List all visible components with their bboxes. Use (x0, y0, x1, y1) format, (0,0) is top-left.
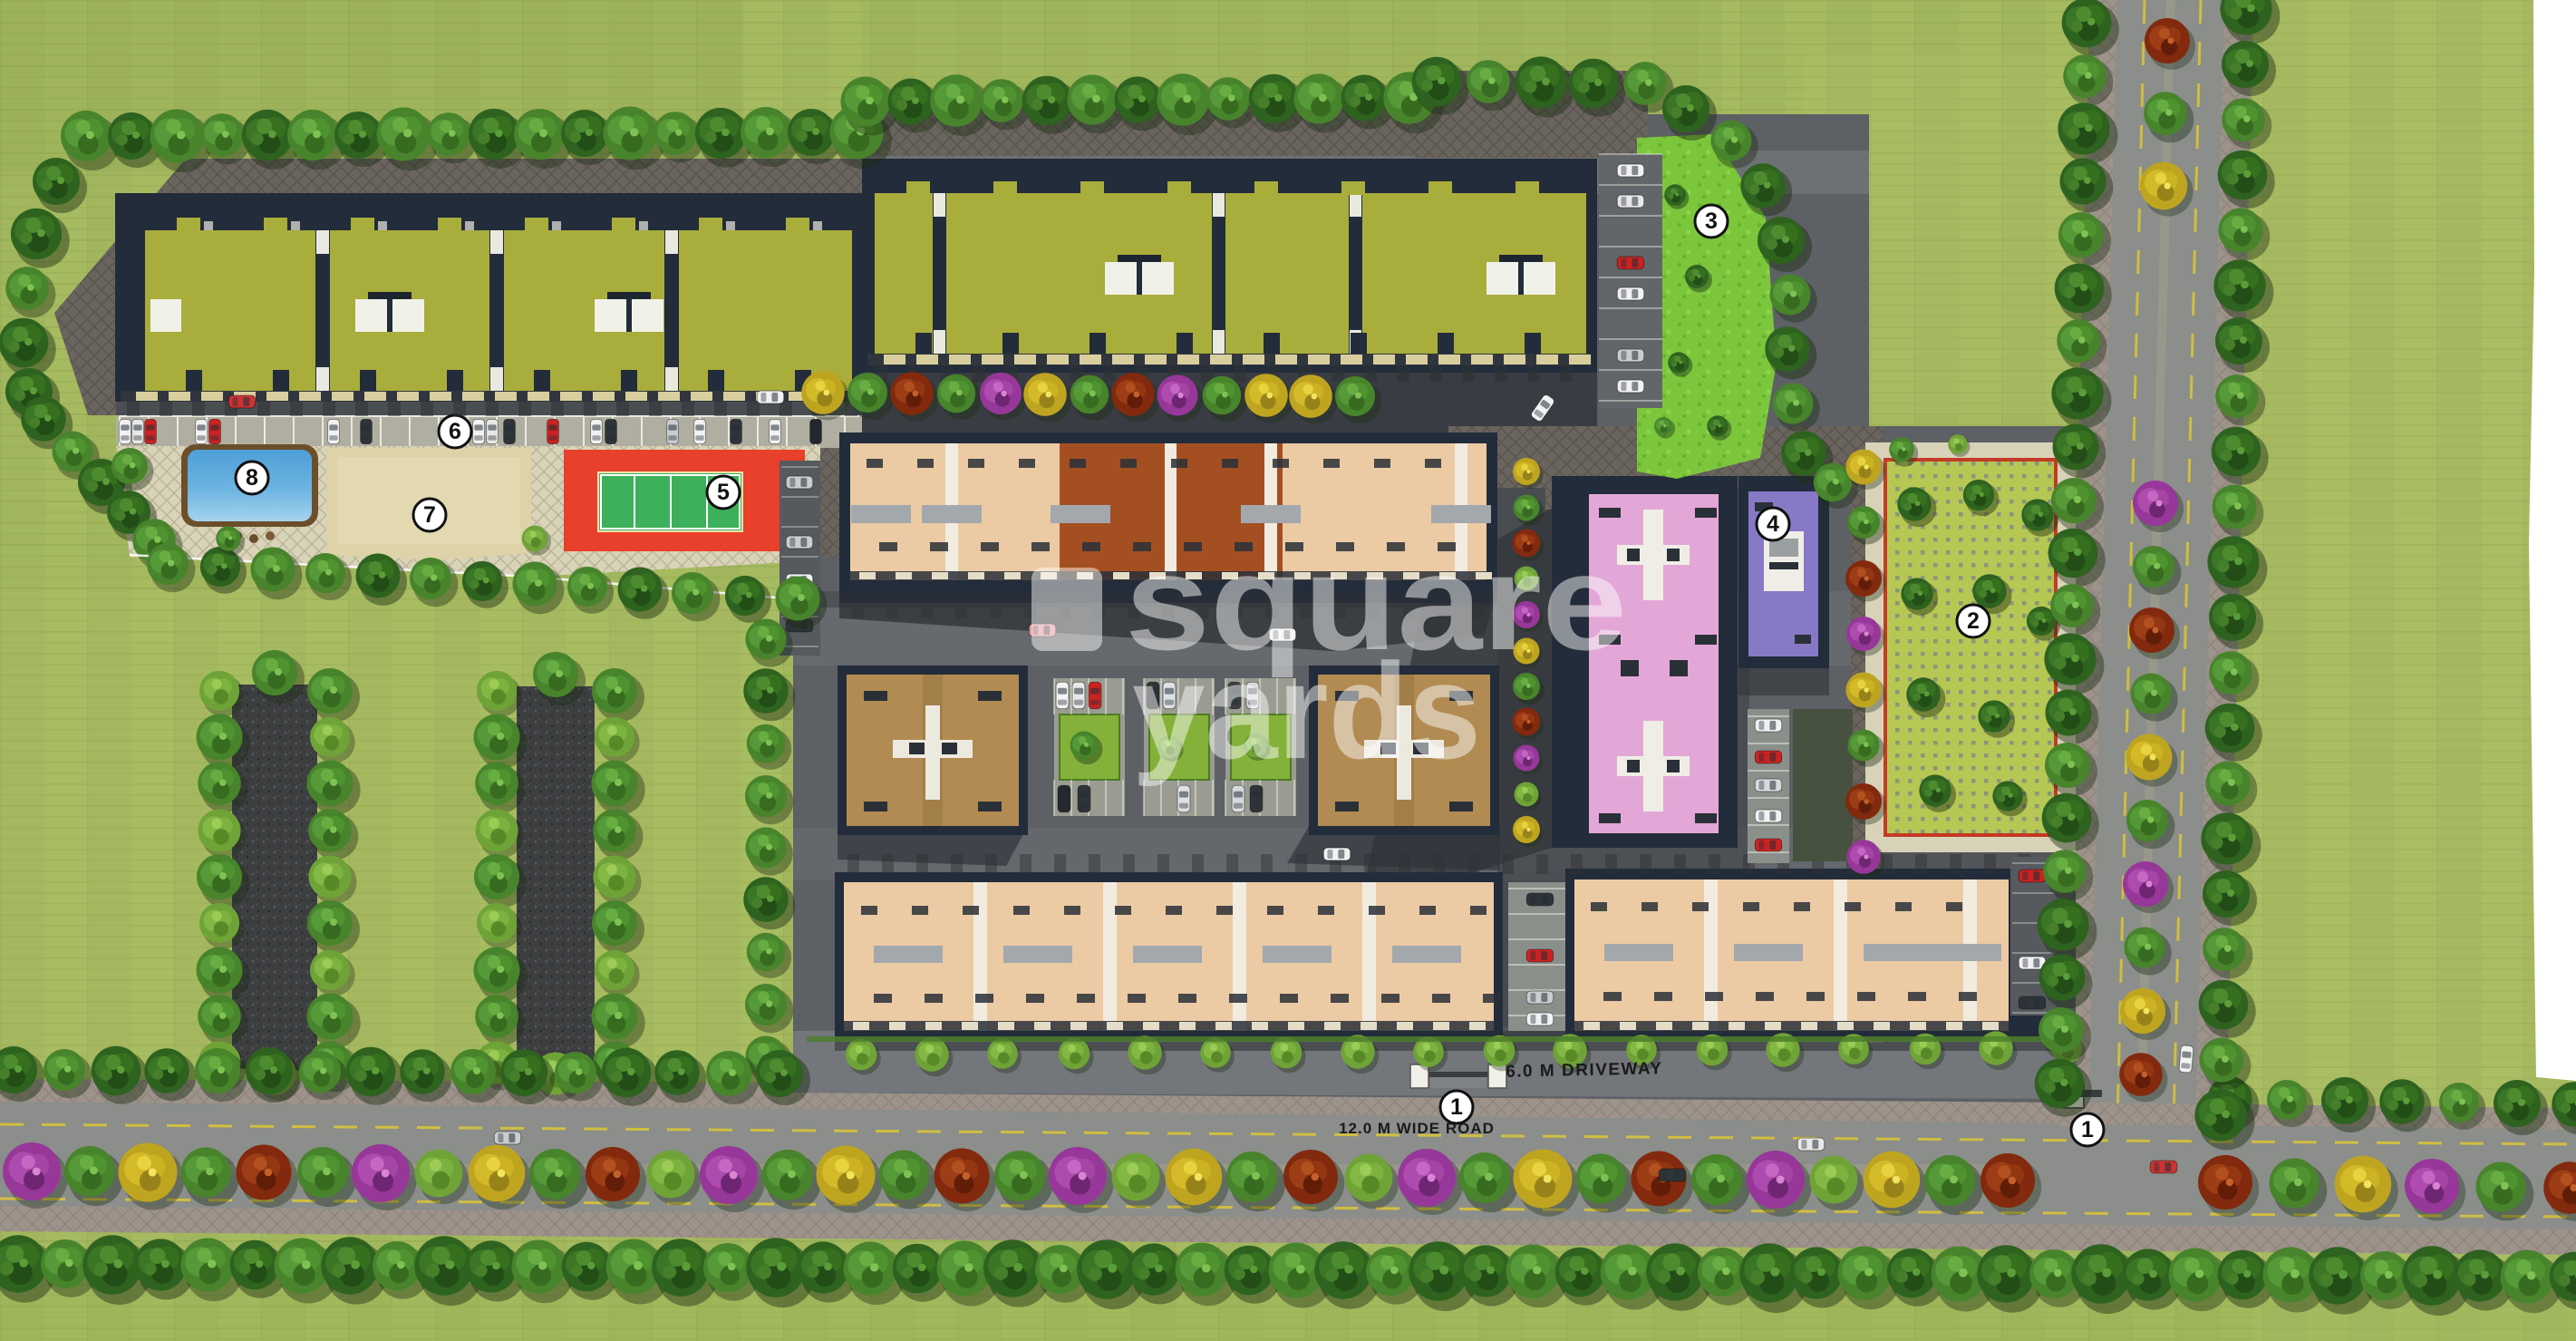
svg-text:12.0 M WIDE ROAD: 12.0 M WIDE ROAD (1339, 1120, 1495, 1137)
svg-text:7: 7 (423, 502, 436, 528)
svg-text:6: 6 (449, 419, 461, 444)
svg-text:8: 8 (246, 465, 258, 491)
svg-text:1: 1 (2081, 1117, 2094, 1142)
svg-text:yards: yards (1132, 635, 1481, 787)
svg-text:5: 5 (717, 480, 730, 505)
svg-text:6.0 M DRIVEWAY: 6.0 M DRIVEWAY (1506, 1059, 1663, 1082)
svg-text:3: 3 (1705, 209, 1718, 234)
svg-text:2: 2 (1967, 608, 1980, 634)
svg-text:1: 1 (1450, 1094, 1463, 1120)
svg-text:4: 4 (1767, 511, 1779, 537)
